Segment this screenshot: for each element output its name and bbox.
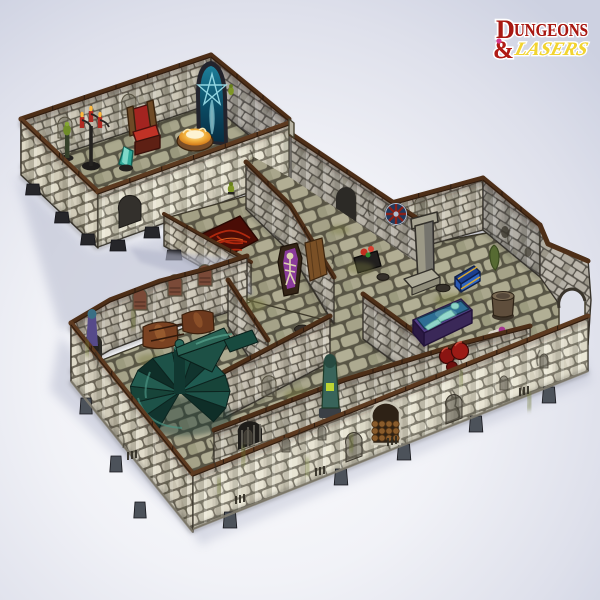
svg-text:UNGEONS: UNGEONS xyxy=(514,20,588,40)
svg-text:&: & xyxy=(493,37,514,64)
svg-text:LASERS: LASERS xyxy=(512,39,591,60)
